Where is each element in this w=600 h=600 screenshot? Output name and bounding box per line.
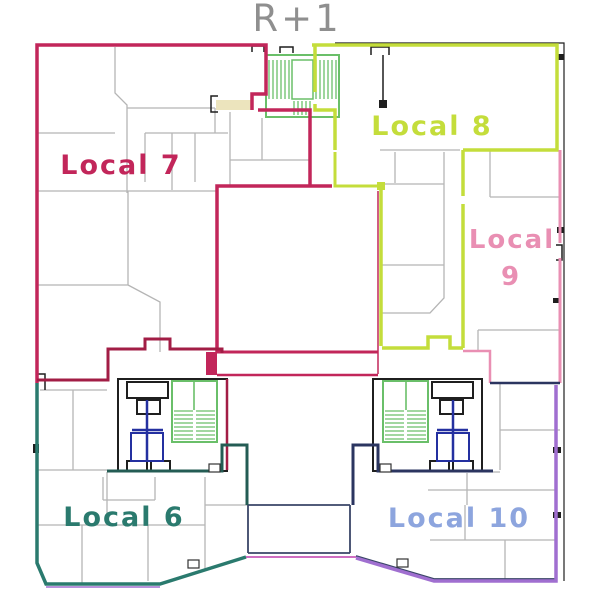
label-local-6: Local 6 [63,502,184,533]
local-10-boundary [353,383,560,581]
stairs-left-core [172,381,217,442]
label-local-9-line2: 9 [501,262,521,292]
local-7-boundary-path [37,339,222,380]
stairs-top-core [266,55,339,117]
drawing-title: R+1 [252,0,341,40]
label-local-7: Local 7 [60,150,181,181]
label-local-9-line1: Local [469,225,555,255]
local-7-boundary-path [37,45,266,383]
label-local-8: Local 8 [371,111,492,142]
local-7-boundary-path [258,110,310,186]
local-8-boundary-path [382,337,463,348]
floor-plan-page: R+1 [0,0,600,600]
local-8-boundary-path [377,182,385,190]
local-8-boundary-path [335,152,377,186]
label-local-10: Local 10 [388,503,530,534]
local-7-boundary-path [206,352,217,375]
beige-door-strip [216,100,252,110]
stairs-right-core [383,381,428,442]
local-7-boundary-path [217,186,332,352]
floor-plan-svg: R+1 [0,0,600,600]
door-strip [211,96,252,112]
